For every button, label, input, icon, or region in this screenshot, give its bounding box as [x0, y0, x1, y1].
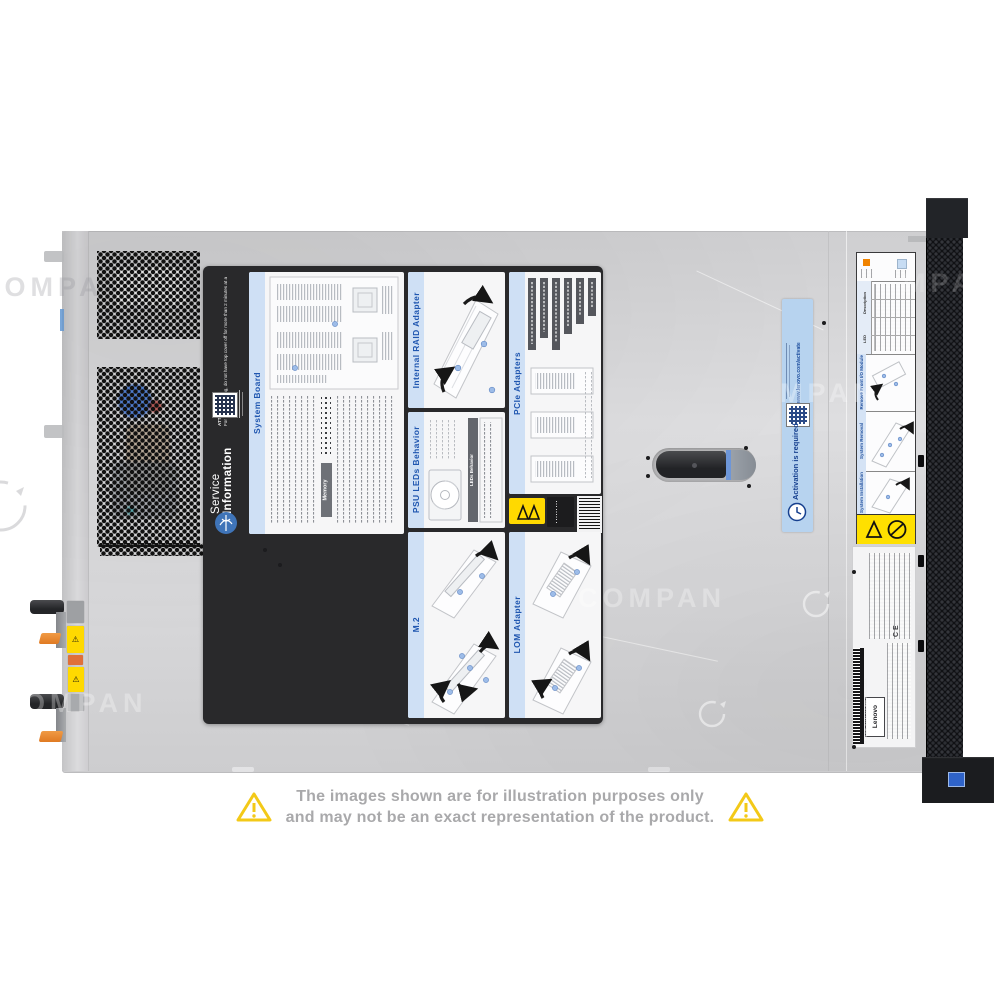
latch-screw: [692, 463, 697, 468]
rear-vent-grid-1: [97, 251, 200, 339]
watermark-logo-icon: [696, 698, 728, 730]
warning-triangle-icon: ⚠: [72, 675, 79, 684]
lenovo-logo: Lenovo: [865, 697, 885, 737]
qr-caption-line: [242, 392, 243, 416]
panel-title-band: PCIe Adapters: [509, 272, 525, 494]
cover-latch-handle: [656, 451, 726, 478]
cover-seam: [846, 231, 847, 771]
watermark-text: MPAN: [780, 378, 878, 409]
section-title: System Installation: [859, 472, 864, 513]
psu1-release-latch-orange: [39, 633, 62, 644]
panel-title: PSU LEDs Behavior: [411, 426, 421, 513]
watermark-logo-icon: [0, 477, 30, 535]
bezel-clip: [918, 640, 924, 652]
globe-icon: [215, 512, 237, 534]
activation-title: Activation is required: [791, 430, 800, 500]
certification-marks: CE: [893, 587, 900, 637]
rear-blue-clip: [60, 309, 64, 331]
psu-orange-sticker: [68, 655, 83, 665]
warning-glyphs: [857, 515, 915, 544]
section-system-removal: System Removal: [857, 411, 915, 472]
watermark-text: OMPAN: [24, 688, 148, 719]
rear-latch-tab: [44, 251, 64, 262]
regulatory-fine-print: [887, 643, 911, 739]
panel-internal-raid: Internal RAID Adapter: [408, 272, 505, 408]
section-title: System Removal: [859, 423, 864, 459]
leds-table-header: LEDs Behavior: [469, 454, 474, 486]
label-warning-sticker: [509, 498, 545, 524]
screw-hole: [263, 548, 267, 552]
panel-title-band: LOM Adapter: [509, 532, 525, 718]
section-illustration: [866, 411, 915, 471]
warning-triangle-icons: [509, 498, 545, 524]
table-gridline: [871, 317, 915, 318]
disclaimer-line2: and may not be an exact representation o…: [286, 807, 715, 828]
warning-triangle-icon: ⚠: [72, 635, 79, 644]
watermark-text: COMPA: [0, 272, 104, 303]
rear-latch-tab: [44, 425, 64, 438]
disclaimer-text: The images shown are for illustration pu…: [286, 786, 715, 828]
watermark-text: MPAN: [903, 268, 1000, 299]
cover-latch-release-button: [726, 450, 756, 480]
panel-title-band: M.2: [408, 532, 424, 718]
psu-barcode-sticker: [67, 601, 84, 623]
memory-header: Memory: [323, 479, 329, 501]
screw-hole: [744, 446, 748, 450]
section-system-installation: System Installation: [857, 471, 915, 515]
screw-hole: [822, 321, 826, 325]
label-text-sticker: [547, 497, 574, 527]
legend-caption: [861, 269, 873, 278]
table-gridline: [871, 299, 915, 300]
activation-sticker: www.lenovo.com/activate Activation is re…: [782, 299, 813, 532]
panel-system-board: System Board Memory: [249, 272, 404, 534]
vent-strip: [100, 543, 208, 556]
mtm-barcode-text: MTM-S/N 7D2XCTO1WW SAAV06898: [864, 650, 868, 744]
service-information-title: Service Information: [210, 450, 234, 514]
watermark-logo-icon: [800, 588, 832, 620]
section-title-band: System Installation: [857, 471, 866, 514]
ear-mount-plate: [908, 236, 926, 242]
panel-title: M.2: [411, 617, 421, 632]
led-table-header-band: Description LED: [857, 281, 872, 354]
panel-title-band: Internal RAID Adapter: [408, 272, 424, 408]
watermark-text: COMPAN: [578, 583, 726, 614]
section-title-band: System Removal: [857, 411, 866, 471]
service-information-label: ATTENTION: For proper cooling, do not ha…: [203, 266, 603, 724]
panel-title: Internal RAID Adapter: [411, 292, 421, 388]
panel-m2: M.2: [408, 532, 505, 718]
panel-title: System Board: [252, 372, 262, 434]
col-description: Description: [862, 292, 867, 314]
table-gridline: [871, 335, 915, 336]
disclaimer-line1: The images shown are for illustration pu…: [286, 786, 715, 807]
bezel-clip: [918, 555, 924, 567]
bezel-clip: [918, 455, 924, 467]
rack-ear-top: [926, 198, 968, 238]
m2-illustration: [424, 532, 505, 718]
psu-leds-diagram: LEDs Behavior: [424, 412, 505, 528]
panel-lom: LOM Adapter: [509, 532, 601, 718]
section-illustration: [866, 471, 915, 514]
screw-hole: [852, 570, 856, 574]
panel-pcie: PCIe Adapters: [509, 272, 601, 494]
mtm-barcode: [853, 648, 864, 744]
activation-clock-icon: [787, 502, 807, 522]
screw-hole: [278, 563, 282, 567]
disclaimer-banner: The images shown are for illustration pu…: [0, 786, 1000, 828]
vent-holes: [97, 251, 200, 339]
xeon-badge: [948, 772, 965, 787]
panel-title-band: PSU LEDs Behavior: [408, 412, 424, 528]
qr-caption-line: [239, 390, 240, 418]
cover-notch: [648, 767, 670, 772]
front-warning-sticker: [857, 514, 915, 544]
raid-illustration: [424, 272, 505, 408]
label-barcode-sticker: [577, 496, 602, 533]
panel-title-band: System Board: [249, 272, 265, 534]
front-bezel: [926, 233, 963, 771]
warning-triangle-icon: [236, 791, 272, 823]
vent-holes: [97, 367, 200, 547]
cover-notch: [232, 767, 254, 772]
rear-vent-grid-2: [97, 367, 200, 547]
panel-title: LOM Adapter: [512, 596, 522, 653]
lom-illustration: [525, 532, 601, 718]
col-led: LED: [862, 335, 867, 343]
system-board-diagram: Memory: [265, 272, 404, 534]
power-led-swatch: [863, 259, 870, 266]
warning-triangle-icon: [728, 791, 764, 823]
service-qr-code: [212, 392, 238, 418]
psu2-release-latch-orange: [39, 731, 64, 742]
screw-hole: [646, 474, 650, 478]
panel-title: PCIe Adapters: [512, 352, 522, 415]
product-photo-scene: ⚠ ⚠ ATTENTION: For proper cooling, do no…: [0, 0, 1000, 1000]
pcie-riser-diagram: [525, 272, 601, 494]
screw-hole: [852, 745, 856, 749]
regulatory-fine-print: [869, 553, 911, 639]
screw-hole: [646, 456, 650, 460]
screw-hole: [747, 484, 751, 488]
panel-psu-leds: PSU LEDs Behavior LEDs Behavior: [408, 412, 505, 528]
cover-seam: [828, 231, 829, 771]
psu-warning-sticker: ⚠: [67, 626, 84, 653]
